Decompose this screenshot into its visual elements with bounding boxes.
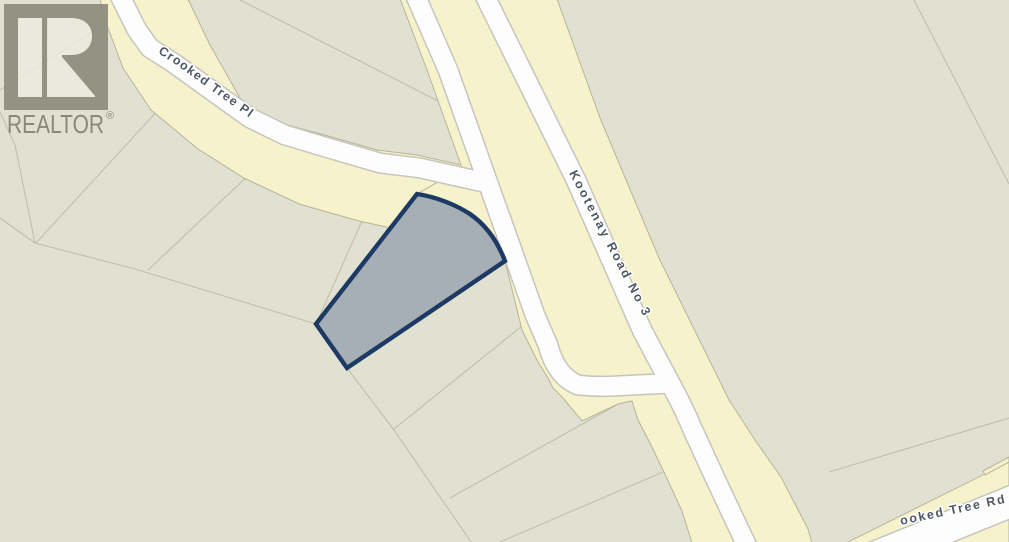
svg-text:®: ® bbox=[106, 110, 114, 122]
svg-text:REALTOR: REALTOR bbox=[7, 109, 104, 139]
